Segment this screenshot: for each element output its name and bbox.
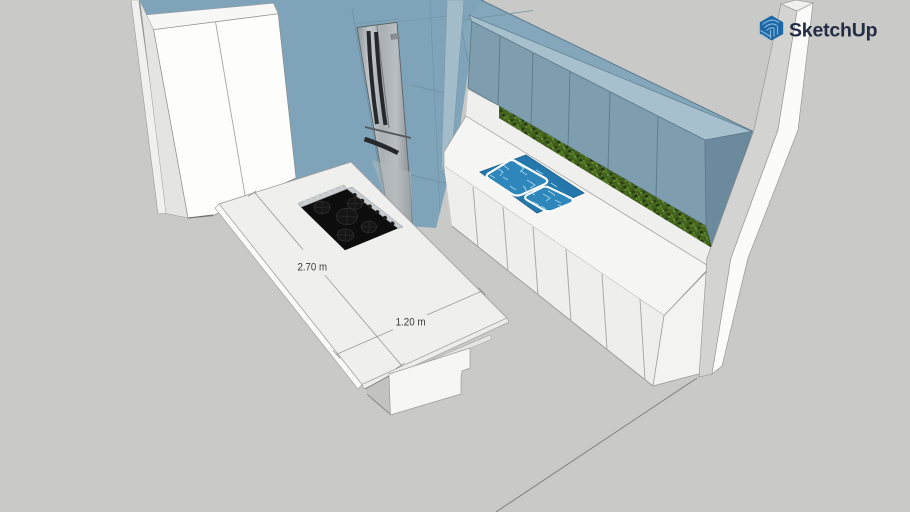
svg-text:SketchUp: SketchUp: [789, 20, 878, 42]
svg-text:2.70 m: 2.70 m: [298, 262, 328, 274]
svg-text:1.20 m: 1.20 m: [396, 317, 426, 329]
